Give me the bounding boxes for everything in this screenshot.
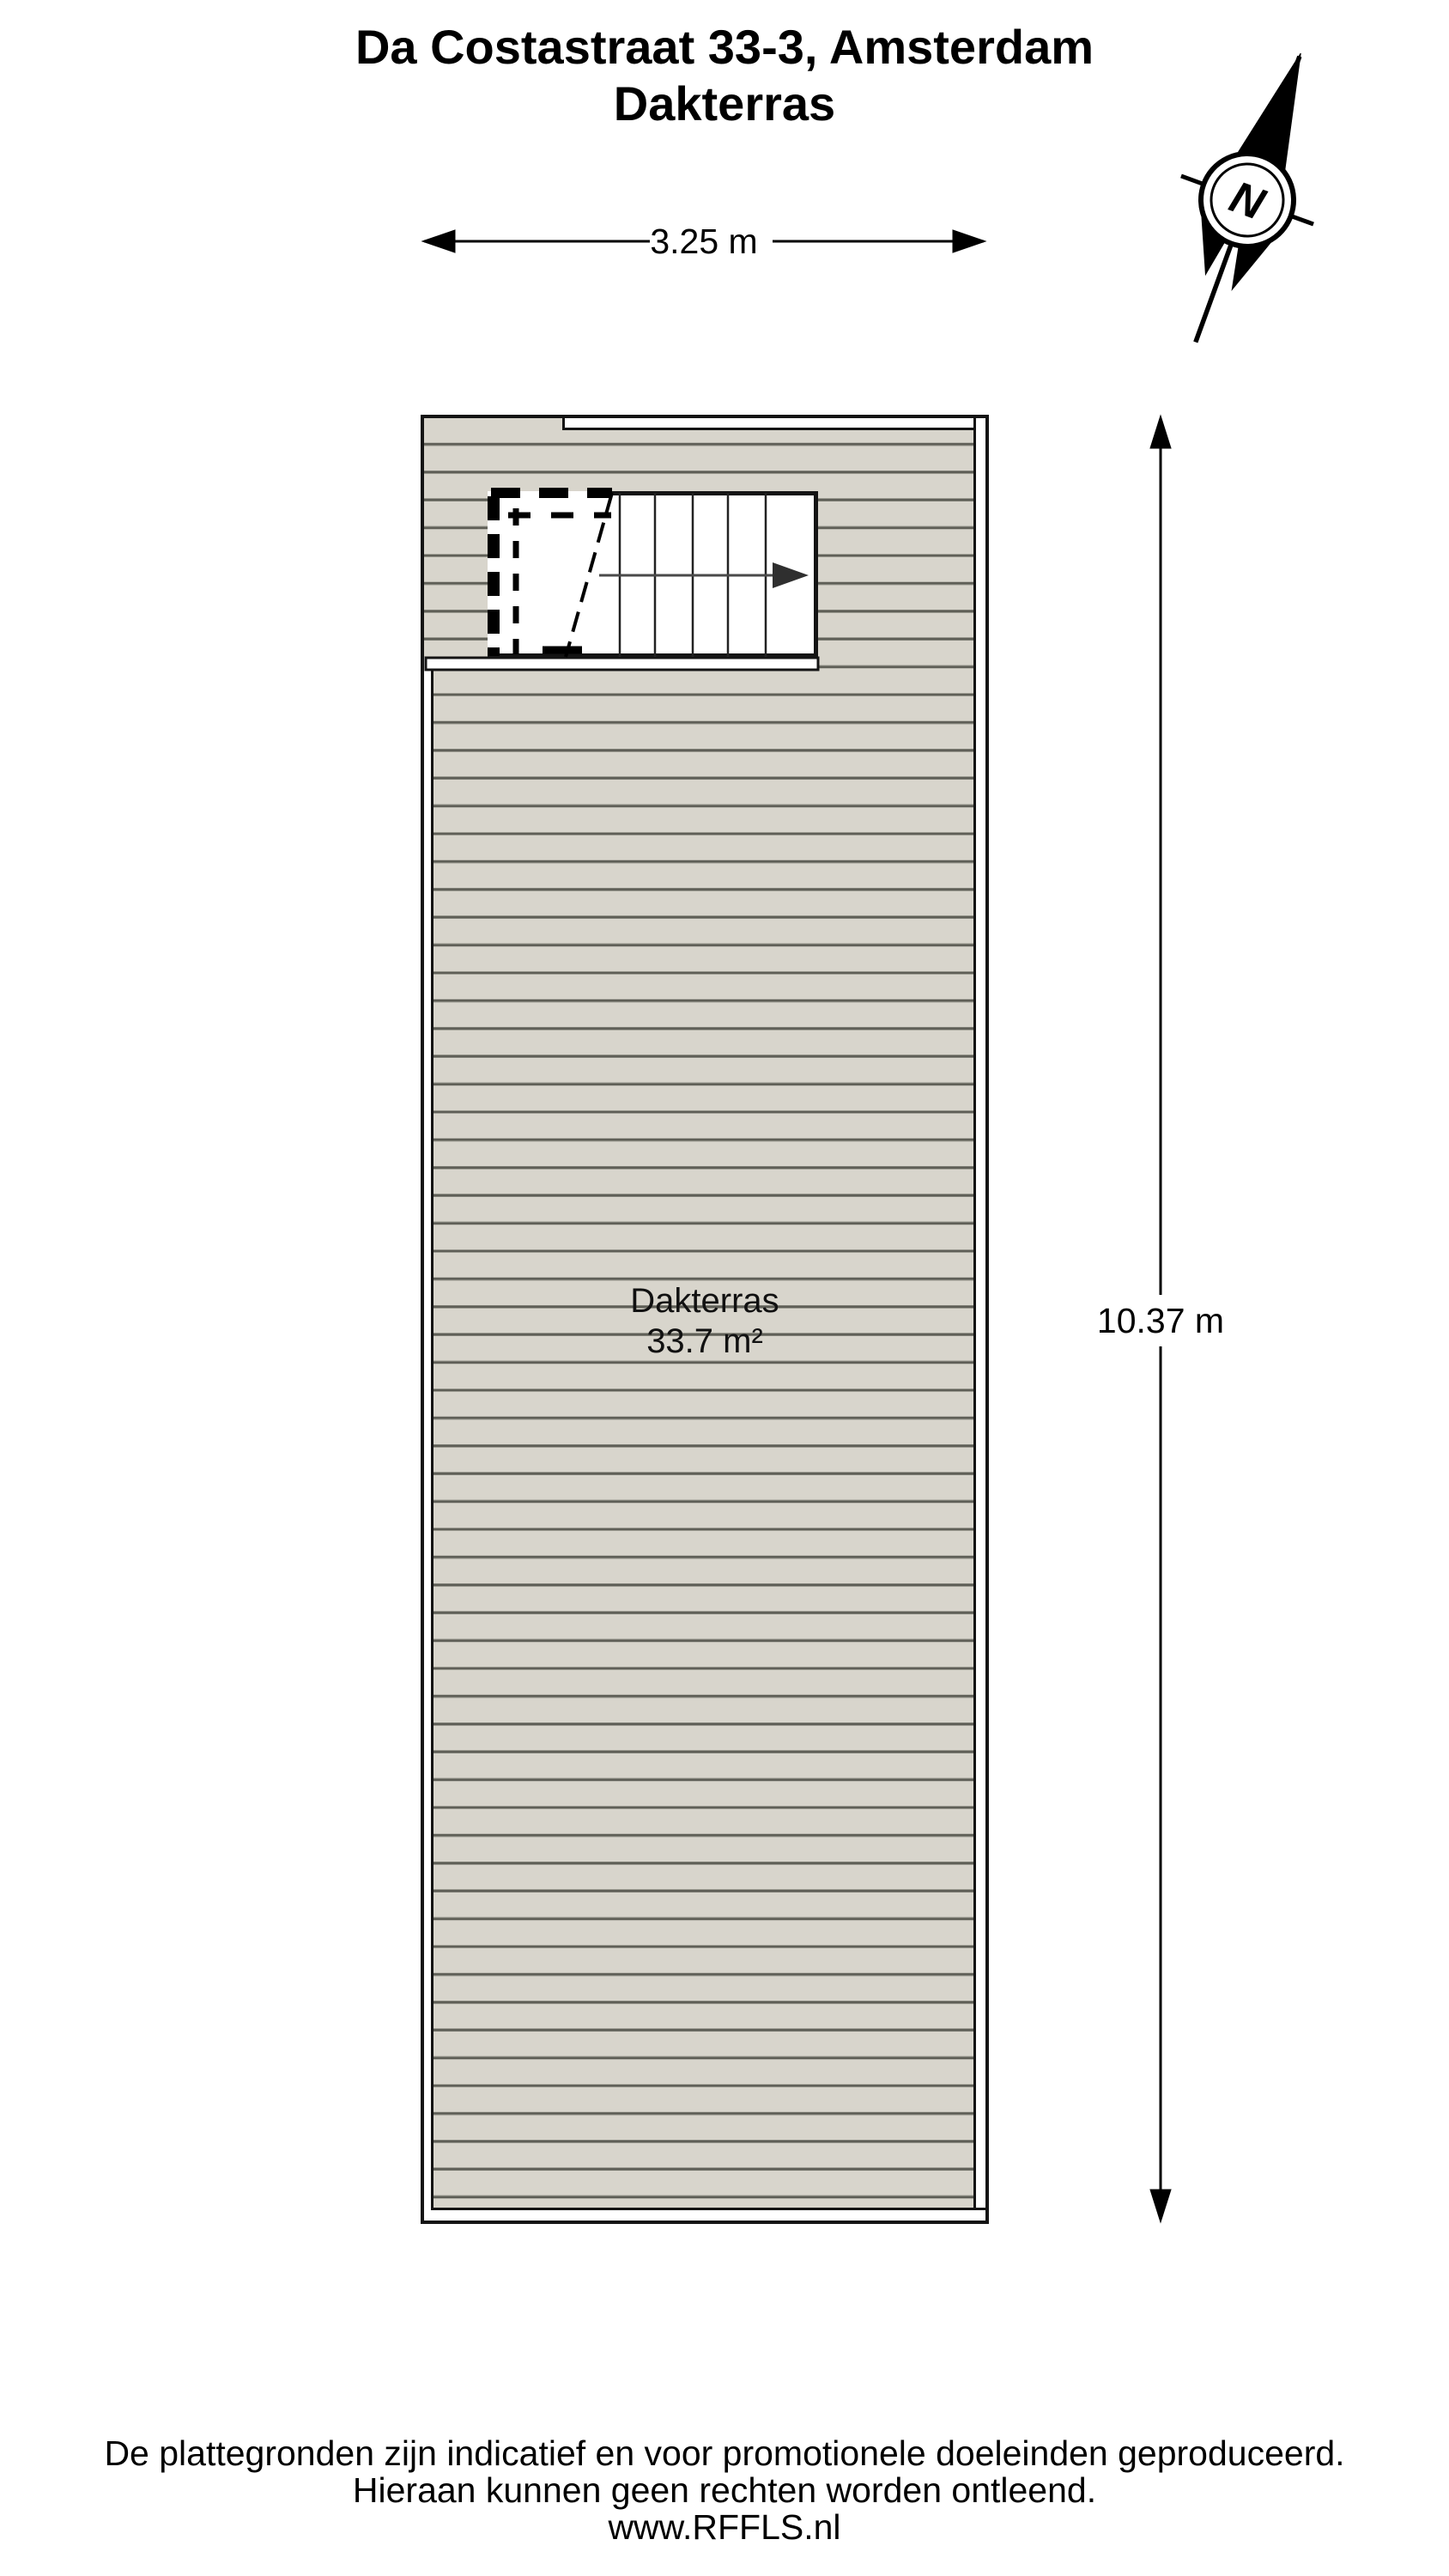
dimension-arrowhead-right-icon: [953, 230, 985, 252]
floorplan-page: { "title": { "line1": "Da Costastraat 33…: [0, 0, 1449, 2576]
roof-terrace-plan: Dakterras 33.7 m²: [421, 415, 989, 2224]
height-dimension-label: 10.37 m: [1097, 1301, 1224, 1340]
footer-line-2: Hieraan kunnen geen rechten worden ontle…: [0, 2472, 1449, 2509]
room-label: Dakterras 33.7 m²: [424, 1281, 985, 1362]
stair-landing: [426, 658, 818, 670]
footer-disclaimer: De plattegronden zijn indicatief en voor…: [0, 2435, 1449, 2546]
parapet-edge-left: [424, 657, 433, 2210]
dimension-arrowhead-down-icon: [1150, 2190, 1171, 2222]
parapet-edge-top: [562, 418, 985, 430]
room-area: 33.7 m²: [424, 1321, 985, 1362]
north-compass-icon: N: [1150, 34, 1348, 361]
dimension-arrowhead-up-icon: [1150, 416, 1171, 448]
footer-line-1: De plattegronden zijn indicatief en voor…: [0, 2435, 1449, 2472]
width-dimension-label: 3.25 m: [650, 222, 757, 261]
footer-website: www.RFFLS.nl: [0, 2509, 1449, 2546]
stairwell: [412, 481, 841, 678]
parapet-edge-bottom: [424, 2208, 985, 2221]
room-name: Dakterras: [424, 1281, 985, 1321]
width-dimension: 3.25 m: [412, 219, 1013, 270]
height-dimension: 10.37 m: [1090, 404, 1245, 2241]
dimension-arrowhead-left-icon: [422, 230, 455, 252]
